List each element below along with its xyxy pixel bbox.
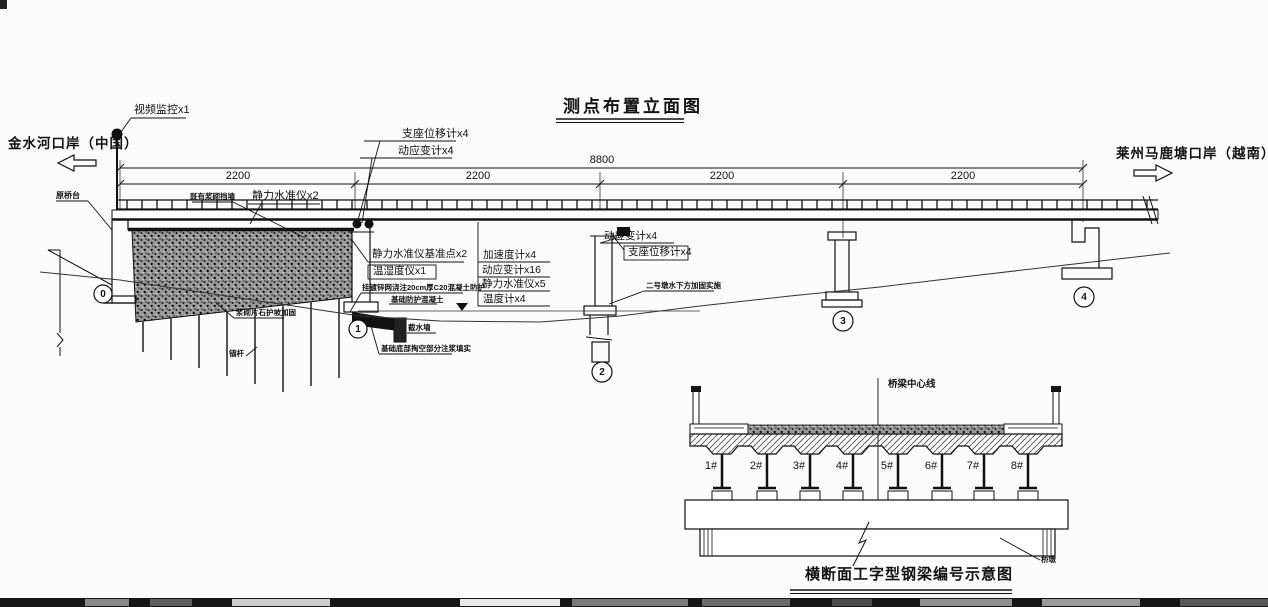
foundation-concrete-label: 基础防护混凝土 — [391, 296, 444, 304]
dim-span-4: 2200 — [938, 170, 988, 182]
pier-num-1: 1 — [351, 324, 365, 335]
dynamic-strain-x16-label: 动应变计x16 — [482, 265, 541, 277]
deck-slab — [690, 434, 1062, 454]
bottom-bar-segment — [150, 599, 192, 606]
bottom-bar-segment — [572, 599, 688, 606]
bottom-bar-segment — [1180, 599, 1268, 606]
title-underline — [556, 119, 684, 123]
pier-label: 桥墩 — [1041, 556, 1056, 564]
engineering-drawing: 测点布置立面图 金水河口岸（中国） 莱州马鹿塘口岸（越南） 视频监控x1 880… — [0, 0, 1268, 607]
bearing-displacement-p1-label: 支座位移计x4 — [402, 128, 469, 140]
cross-section — [685, 378, 1068, 594]
benchmark-label: 静力水准仪基准点x2 — [372, 249, 467, 261]
embankment-note-label: 既有浆砌挡墙 — [190, 193, 235, 201]
temp-humidity-label: 温湿度仪x1 — [373, 266, 426, 278]
old-abutment-label: 原桥台 — [56, 192, 80, 201]
cross-section-caption: 横断面工字型钢梁编号示意图 — [805, 567, 1013, 584]
abutment-4 — [1062, 220, 1112, 279]
beam-label-1: 1# — [700, 460, 722, 472]
bottom-bar-segment — [460, 599, 560, 606]
pier-num-4: 4 — [1077, 292, 1091, 303]
pier-2 — [584, 227, 630, 362]
right-bank-label: 莱州马鹿塘口岸（越南） — [1116, 147, 1268, 162]
beam-label-4: 4# — [831, 460, 853, 472]
asphalt-layer — [748, 425, 1004, 434]
anchor-label: 锚杆 — [229, 350, 244, 358]
mesh-concrete-label: 挂镀锌网浇注20cm厚C20混凝土防护 — [362, 284, 485, 292]
slope-note-label: 浆砌片石护坡加固 — [236, 309, 296, 317]
dim-span-3: 2200 — [697, 170, 747, 182]
grouting-note-label: 基础底部掏空部分注浆填实 — [381, 345, 471, 353]
beam-label-7: 7# — [962, 460, 984, 472]
bottom-bar-segment — [1042, 599, 1140, 606]
dim-span-1: 2200 — [213, 170, 263, 182]
pier2-note-label: 二号墩水下方加固实施 — [646, 282, 721, 290]
pier-body — [700, 529, 1055, 556]
thermometer-label: 温度计x4 — [483, 294, 526, 306]
bottom-bar-segment — [702, 599, 790, 606]
bottom-bar-segment — [232, 599, 330, 606]
bottom-bar-segment — [85, 599, 129, 606]
bottom-bar-segment — [920, 599, 1012, 606]
dim-span-2: 2200 — [453, 170, 503, 182]
beam-label-6: 6# — [920, 460, 942, 472]
dim-total: 8800 — [577, 154, 627, 166]
centerline-label: 桥梁中心线 — [888, 380, 936, 390]
drawing-linework — [0, 0, 1268, 607]
pier-num-2: 2 — [595, 367, 609, 378]
beam-label-8: 8# — [1006, 460, 1028, 472]
cutoff-wall-label: 截水墙 — [408, 324, 431, 332]
pier-num-0: 0 — [96, 289, 110, 300]
cap-beam — [685, 500, 1068, 529]
bottom-bar — [0, 598, 1268, 607]
beam-label-3: 3# — [788, 460, 810, 472]
left-bank-arrow-icon — [58, 155, 96, 171]
static-level-x2-label: 静力水准仪x2 — [252, 190, 319, 202]
accelerometer-label: 加速度计x4 — [483, 250, 536, 262]
right-bank-arrow-icon — [1134, 165, 1172, 181]
beam-label-5: 5# — [876, 460, 898, 472]
pier-3 — [822, 232, 862, 307]
screen-corner-artifact — [0, 0, 7, 9]
dynamic-strain-p1-label: 动应变计x4 — [398, 145, 454, 157]
bearing-displacement-p2-label: 支座位移计x4 — [628, 247, 692, 259]
beam-label-2: 2# — [745, 460, 767, 472]
left-bank-label: 金水河口岸（中国） — [8, 137, 139, 152]
camera-label: 视频监控x1 — [134, 104, 190, 116]
pier-num-3: 3 — [836, 316, 850, 327]
bottom-bar-segment — [832, 599, 872, 606]
drawing-title: 测点布置立面图 — [563, 98, 703, 117]
static-level-x5-label: 静力水准仪x5 — [482, 279, 546, 291]
dynamic-strain-p2-label: 动应变计x4 — [604, 231, 657, 243]
